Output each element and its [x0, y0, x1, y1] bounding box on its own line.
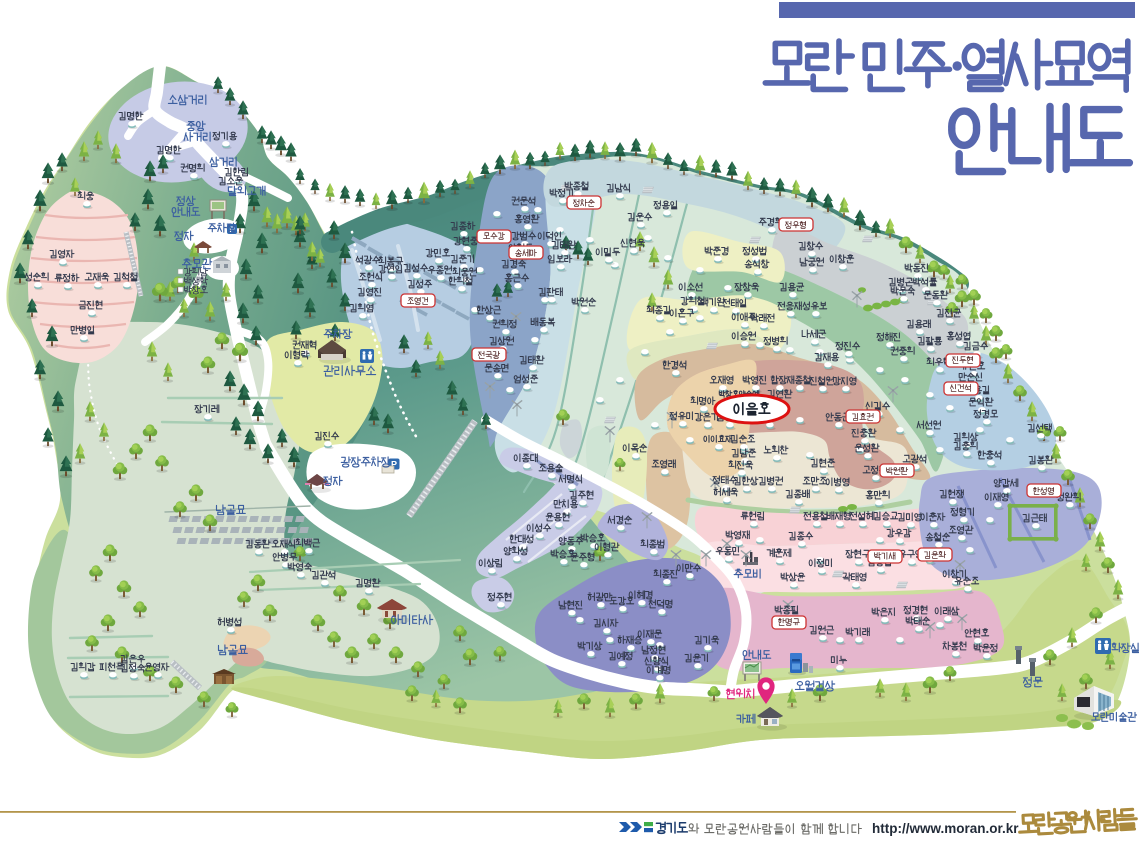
svg-text:http://www.moran.or.kr: http://www.moran.or.kr	[872, 821, 1019, 836]
